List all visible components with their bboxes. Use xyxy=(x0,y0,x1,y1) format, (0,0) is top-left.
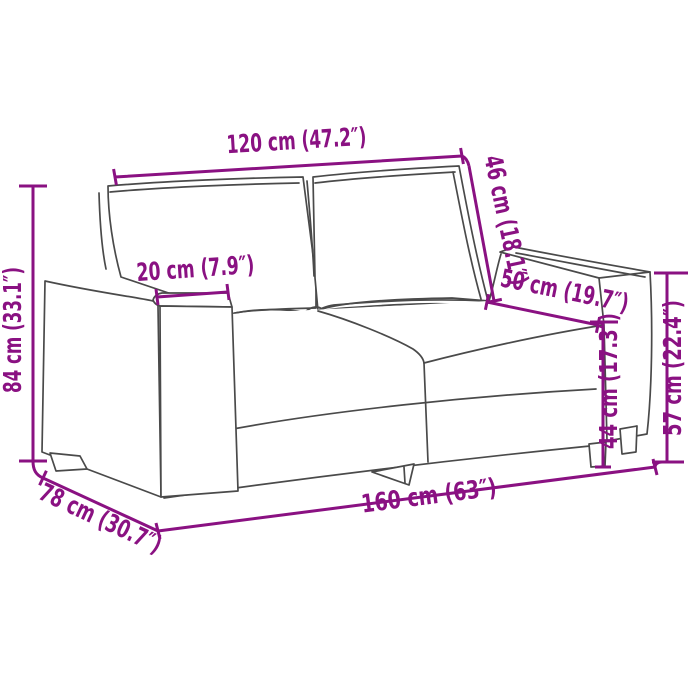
dim-seat-height: 44 cm (17.3″) xyxy=(590,313,623,467)
dim-overall-height: 84 cm (33.1″) xyxy=(0,186,47,478)
dim-label-back-width: 120 cm (47.2″) xyxy=(226,122,368,159)
right-back-cushion xyxy=(313,166,488,311)
dimension-diagram: 84 cm (33.1″) 78 cm (30.7″) 160 cm (63″)… xyxy=(0,0,700,700)
sofa-dimension-figure: 84 cm (33.1″) 78 cm (30.7″) 160 cm (63″)… xyxy=(0,0,700,700)
dim-label-armrest-height: 57 cm (22.4″) xyxy=(658,300,687,436)
left-armrest-front-face xyxy=(160,306,238,497)
dim-label-seat-height: 44 cm (17.3″) xyxy=(594,313,623,449)
dim-label-overall-height: 84 cm (33.1″) xyxy=(0,267,27,393)
dim-label-overall-width: 160 cm (63″) xyxy=(360,473,499,519)
dim-armrest-height: 57 cm (22.4″) xyxy=(652,273,688,462)
front-center-leg-inner-line xyxy=(404,467,405,483)
backrest-frame-edge xyxy=(99,193,106,269)
sofa-line-drawing xyxy=(42,166,652,498)
